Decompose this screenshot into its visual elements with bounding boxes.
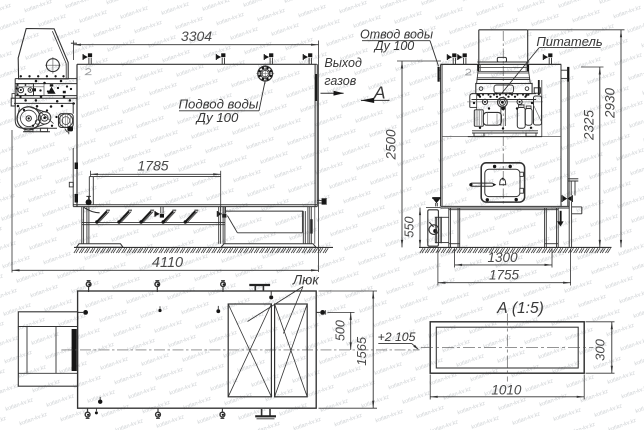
svg-text:300: 300 (592, 338, 607, 360)
svg-text:3304: 3304 (181, 28, 212, 44)
svg-text:2500: 2500 (383, 129, 398, 161)
svg-text:1010: 1010 (491, 383, 522, 398)
svg-text:1565: 1565 (354, 336, 369, 366)
svg-text:550: 550 (403, 217, 417, 238)
svg-text:1300: 1300 (487, 250, 518, 265)
svg-text:Выход: Выход (324, 56, 362, 70)
svg-text:Ду 100: Ду 100 (195, 110, 239, 125)
svg-text:А (1:5): А (1:5) (496, 300, 544, 317)
svg-text:2325: 2325 (581, 109, 596, 141)
svg-text:1755: 1755 (489, 268, 520, 283)
svg-text:Питатель: Питатель (536, 34, 603, 49)
svg-text:2930: 2930 (602, 87, 617, 119)
svg-text:500: 500 (333, 320, 347, 341)
svg-text:1785: 1785 (137, 158, 168, 174)
svg-text:А: А (373, 82, 386, 102)
svg-text:4110: 4110 (152, 255, 183, 271)
svg-text:газов: газов (324, 74, 356, 88)
svg-text:+2 105: +2 105 (378, 330, 416, 344)
svg-text:Люк: Люк (292, 273, 319, 288)
